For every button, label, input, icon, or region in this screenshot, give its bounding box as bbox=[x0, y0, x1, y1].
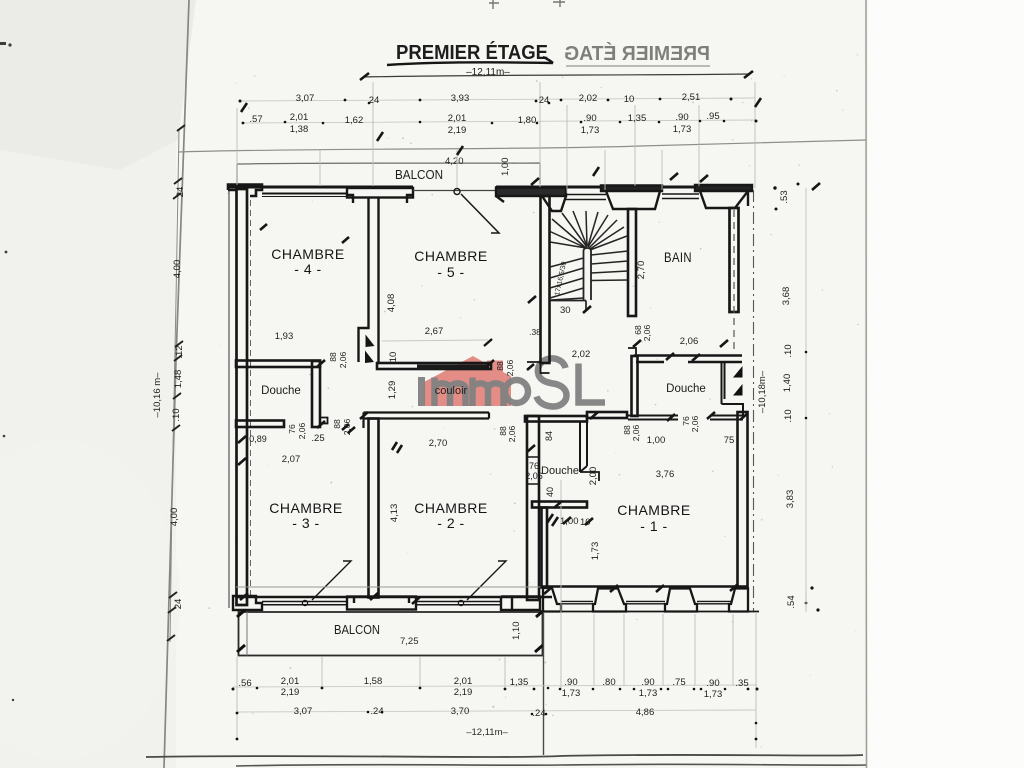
svg-text:.80: .80 bbox=[602, 677, 615, 688]
svg-text:1,29: 1,29 bbox=[387, 381, 398, 400]
svg-text:4,00: 4,00 bbox=[169, 508, 180, 527]
svg-text:- 5 -: - 5 - bbox=[437, 264, 464, 280]
svg-text:.10: .10 bbox=[783, 409, 794, 422]
svg-text:.10: .10 bbox=[783, 344, 794, 357]
svg-text:CHAMBRE: CHAMBRE bbox=[271, 246, 345, 262]
svg-text:2,01: 2,01 bbox=[281, 676, 300, 687]
svg-text:40: 40 bbox=[545, 487, 555, 497]
svg-text:1,10: 1,10 bbox=[511, 622, 522, 641]
svg-text:2,06: 2,06 bbox=[680, 336, 699, 347]
svg-text:1,73: 1,73 bbox=[590, 542, 601, 561]
svg-text:2,70: 2,70 bbox=[429, 438, 448, 449]
svg-text:.56: .56 bbox=[238, 678, 251, 689]
svg-text:84: 84 bbox=[544, 431, 554, 441]
svg-text:PREMIER ÉTAG: PREMIER ÉTAG bbox=[564, 42, 710, 65]
svg-text:3,93: 3,93 bbox=[451, 93, 470, 104]
svg-text:Douche: Douche bbox=[541, 465, 579, 477]
svg-text:1,00: 1,00 bbox=[647, 435, 666, 446]
svg-text:–10,18m–: –10,18m– bbox=[757, 370, 768, 413]
svg-text:.54: .54 bbox=[786, 595, 797, 608]
svg-text:.35: .35 bbox=[735, 678, 748, 689]
svg-text:2,02: 2,02 bbox=[572, 349, 591, 360]
svg-text:4,08: 4,08 bbox=[386, 294, 397, 313]
svg-text:0,89: 0,89 bbox=[249, 434, 267, 444]
svg-text:2,02: 2,02 bbox=[579, 93, 598, 104]
svg-text:1,35: 1,35 bbox=[628, 113, 647, 124]
svg-text:1,93: 1,93 bbox=[275, 331, 294, 342]
svg-text:30: 30 bbox=[560, 305, 571, 316]
svg-text:CHAMBRE: CHAMBRE bbox=[617, 502, 691, 518]
svg-text:.57: .57 bbox=[249, 114, 262, 125]
svg-text:1,73: 1,73 bbox=[704, 689, 723, 700]
svg-text:2,01: 2,01 bbox=[290, 112, 309, 123]
svg-text:.25: .25 bbox=[311, 433, 324, 444]
svg-text:76: 76 bbox=[287, 424, 297, 434]
svg-text:4,20: 4,20 bbox=[445, 156, 464, 167]
svg-text:CHAMBRE: CHAMBRE bbox=[414, 248, 488, 264]
svg-text:- 2 -: - 2 - bbox=[437, 515, 464, 531]
svg-text:3,07: 3,07 bbox=[294, 706, 313, 717]
svg-text:2,51: 2,51 bbox=[682, 92, 701, 103]
svg-text:4,00: 4,00 bbox=[172, 260, 183, 279]
svg-text:.24: .24 bbox=[532, 708, 545, 719]
svg-text:.90: .90 bbox=[564, 677, 577, 688]
svg-text:2,06: 2,06 bbox=[297, 422, 307, 439]
svg-text:2,19: 2,19 bbox=[454, 687, 473, 698]
svg-text:1,58: 1,58 bbox=[364, 676, 383, 687]
svg-text:2,01: 2,01 bbox=[454, 676, 473, 687]
svg-text:2,67: 2,67 bbox=[425, 326, 444, 337]
svg-text:24: 24 bbox=[175, 187, 186, 198]
svg-text:2,19: 2,19 bbox=[448, 125, 467, 136]
svg-text:Douche: Douche bbox=[666, 383, 706, 395]
svg-text:3,83: 3,83 bbox=[785, 490, 796, 509]
svg-text:2,06: 2,06 bbox=[507, 425, 517, 442]
svg-text:3,68: 3,68 bbox=[781, 287, 792, 306]
svg-text:2,19: 2,19 bbox=[281, 687, 300, 698]
svg-text:4,13: 4,13 bbox=[389, 504, 400, 523]
svg-text:–10,16 m–: –10,16 m– bbox=[152, 372, 163, 418]
svg-text:.38: .38 bbox=[529, 327, 541, 337]
svg-text:- 3 -: - 3 - bbox=[292, 515, 319, 531]
svg-text:10: 10 bbox=[624, 94, 635, 105]
svg-text:2,06: 2,06 bbox=[642, 324, 652, 341]
svg-text:2,00: 2,00 bbox=[588, 467, 599, 486]
svg-text:BAIN: BAIN bbox=[664, 249, 692, 265]
svg-text:1,00: 1,00 bbox=[500, 158, 511, 177]
svg-text:1,35: 1,35 bbox=[510, 677, 529, 688]
svg-text:88: 88 bbox=[328, 352, 338, 362]
svg-text:3,76: 3,76 bbox=[656, 469, 675, 480]
svg-text:2,06: 2,06 bbox=[505, 359, 515, 376]
svg-text:.95: .95 bbox=[706, 111, 719, 122]
svg-text:.90: .90 bbox=[641, 677, 654, 688]
svg-text:7,25: 7,25 bbox=[400, 636, 419, 647]
svg-text:BALCON: BALCON bbox=[395, 167, 443, 182]
svg-text:2,07: 2,07 bbox=[282, 454, 301, 465]
svg-text:2,06: 2,06 bbox=[525, 471, 543, 481]
svg-text:2,06: 2,06 bbox=[338, 351, 348, 368]
svg-text:.90: .90 bbox=[706, 678, 719, 689]
svg-text:1,40: 1,40 bbox=[782, 374, 793, 393]
svg-text:couloir: couloir bbox=[435, 385, 468, 397]
svg-text:.10: .10 bbox=[171, 408, 182, 421]
svg-text:1,80: 1,80 bbox=[518, 115, 537, 126]
svg-text:CHAMBRE: CHAMBRE bbox=[269, 500, 343, 516]
svg-text:4,86: 4,86 bbox=[636, 707, 655, 718]
svg-text:–12,11m–: –12,11m– bbox=[466, 67, 510, 78]
svg-text:.75: .75 bbox=[672, 677, 685, 688]
svg-text:76: 76 bbox=[529, 461, 539, 471]
svg-text:1,73: 1,73 bbox=[673, 124, 692, 135]
svg-text:2,01: 2,01 bbox=[448, 113, 467, 124]
svg-text:88: 88 bbox=[332, 419, 342, 429]
svg-text:.90: .90 bbox=[583, 113, 596, 124]
svg-text:.53: .53 bbox=[779, 190, 790, 203]
svg-text:75: 75 bbox=[724, 435, 735, 446]
svg-text:2,06: 2,06 bbox=[690, 415, 700, 432]
svg-text:88: 88 bbox=[495, 361, 505, 371]
svg-text:2,06: 2,06 bbox=[631, 424, 641, 441]
svg-text:24: 24 bbox=[539, 95, 550, 106]
svg-text:Douche: Douche bbox=[261, 385, 301, 397]
svg-text:3,07: 3,07 bbox=[296, 93, 315, 104]
svg-text:- 4 -: - 4 - bbox=[294, 261, 321, 277]
svg-text:BALCON: BALCON bbox=[334, 622, 380, 637]
svg-text:24: 24 bbox=[369, 95, 380, 106]
svg-text:- 1 -: - 1 - bbox=[640, 518, 667, 534]
svg-text:–12,11m–: –12,11m– bbox=[466, 727, 508, 738]
svg-text:1,73: 1,73 bbox=[639, 688, 658, 699]
svg-text:1,48: 1,48 bbox=[173, 370, 184, 389]
svg-text:10: 10 bbox=[388, 352, 399, 363]
svg-text:2,70: 2,70 bbox=[636, 261, 647, 280]
svg-text:CHAMBRE: CHAMBRE bbox=[414, 500, 488, 516]
svg-text:.12: .12 bbox=[174, 345, 185, 358]
svg-text:24: 24 bbox=[173, 599, 184, 610]
svg-text:1,62: 1,62 bbox=[345, 115, 364, 126]
svg-text:1,38: 1,38 bbox=[290, 124, 309, 135]
svg-text:1,73: 1,73 bbox=[562, 688, 581, 699]
svg-text:PREMIER ÉTAGE: PREMIER ÉTAGE bbox=[396, 41, 548, 64]
svg-text:.90: .90 bbox=[675, 112, 688, 123]
svg-text:3,70: 3,70 bbox=[451, 706, 470, 717]
svg-text:1,73: 1,73 bbox=[581, 125, 600, 136]
